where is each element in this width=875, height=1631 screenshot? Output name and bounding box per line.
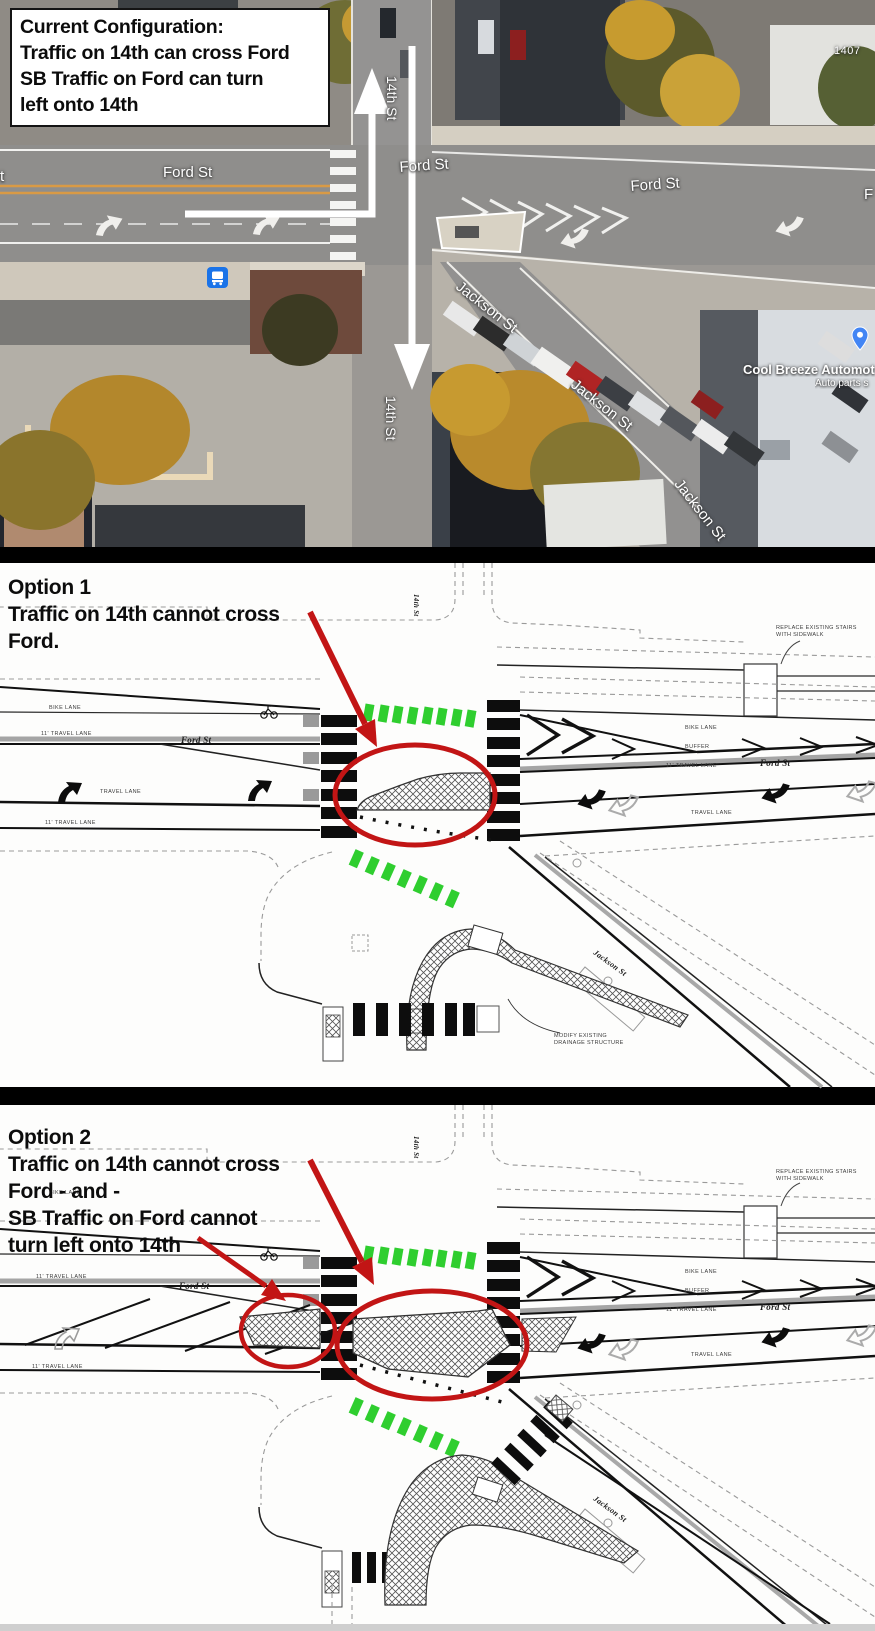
business-name-label: Cool Breeze Automot [743, 362, 875, 377]
traffic-options-graphic: Current Configuration: Traffic on 14th c… [0, 0, 875, 1631]
divider-middle [0, 1087, 875, 1105]
ford-st-plan-label: Ford St [760, 758, 790, 768]
ford-st-plan-label: Ford St [179, 1281, 209, 1291]
travel-lane-label: 11' TRAVEL LANE [666, 1307, 717, 1313]
callout-line: left onto 14th [20, 92, 320, 118]
callout-line: Option 2 [8, 1124, 280, 1151]
travel-lane-label: 11' TRAVEL LANE [32, 1364, 83, 1370]
travel-lane-label: 11' TRAVEL LANE [36, 1274, 87, 1280]
callout-line: Current Configuration: [20, 14, 320, 40]
current-config-callout: Current Configuration: Traffic on 14th c… [10, 8, 330, 127]
buffer-label: BUFFER [685, 1288, 709, 1294]
divider-top [0, 547, 875, 563]
fourteenth-st-label: 14th St [384, 76, 400, 120]
fourteenth-st-label: 14th St [383, 396, 399, 440]
replace-stairs-note: REPLACE EXISTING STAIRS WITH SIDEWALK [776, 1169, 857, 1183]
ford-st-plan-label: Ford St [181, 735, 211, 745]
fourteenth-st-plan-label: 14th St [412, 1136, 420, 1159]
callout-line: Ford. [8, 628, 280, 655]
ford-st-plan-label: Ford St [760, 1302, 790, 1312]
street-label-partial: t [0, 168, 4, 185]
travel-lane-label: 11' TRAVEL LANE [45, 820, 96, 826]
ford-st-label: Ford St [399, 156, 449, 176]
travel-lane-label: 11' TRAVEL LANE [41, 731, 92, 737]
callout-line: Traffic on 14th can cross Ford [20, 40, 320, 66]
house-number-label: 1407 [834, 45, 860, 57]
replace-stairs-note: REPLACE EXISTING STAIRS WITH SIDEWALK [776, 625, 857, 639]
bottom-strip [0, 1624, 875, 1631]
ford-st-label: Ford St [630, 175, 680, 195]
bike-lane-label: BIKE LANE [49, 705, 81, 711]
callout-line: Ford - and - [8, 1178, 280, 1205]
travel-lane-label: TRAVEL LANE [691, 810, 732, 816]
callout-line: SB Traffic on Ford can turn [20, 66, 320, 92]
bike-lane-label: BIKE LANE [685, 725, 717, 731]
travel-lane-label: 11' TRAVEL LANE [666, 763, 717, 769]
business-subtitle-label: Auto parts s [815, 378, 875, 389]
bus-stop-icon [207, 267, 228, 293]
artwork-canvas [0, 0, 875, 1631]
ford-st-label: Ford St [163, 164, 212, 181]
bike-lane-label: BIKE LANE [685, 1269, 717, 1275]
map-pin-icon [851, 326, 869, 356]
ford-st-label-partial: F [864, 186, 873, 203]
callout-line: Traffic on 14th cannot cross [8, 601, 280, 628]
callout-line: Traffic on 14th cannot cross [8, 1151, 280, 1178]
callout-line: turn left onto 14th [8, 1232, 280, 1259]
option2-callout: Option 2 Traffic on 14th cannot cross Fo… [8, 1124, 280, 1259]
travel-lane-label: TRAVEL LANE [691, 1352, 732, 1358]
buffer-label: BUFFER [685, 744, 709, 750]
callout-line: Option 1 [8, 574, 280, 601]
travel-lane-label: TRAVEL LANE [100, 789, 141, 795]
modify-drainage-note: MODIFY EXISTING DRAINAGE STRUCTURE [554, 1033, 624, 1047]
callout-line: SB Traffic on Ford cannot [8, 1205, 280, 1232]
fourteenth-st-plan-label: 14th St [412, 594, 420, 617]
option1-callout: Option 1 Traffic on 14th cannot cross Fo… [8, 574, 280, 655]
